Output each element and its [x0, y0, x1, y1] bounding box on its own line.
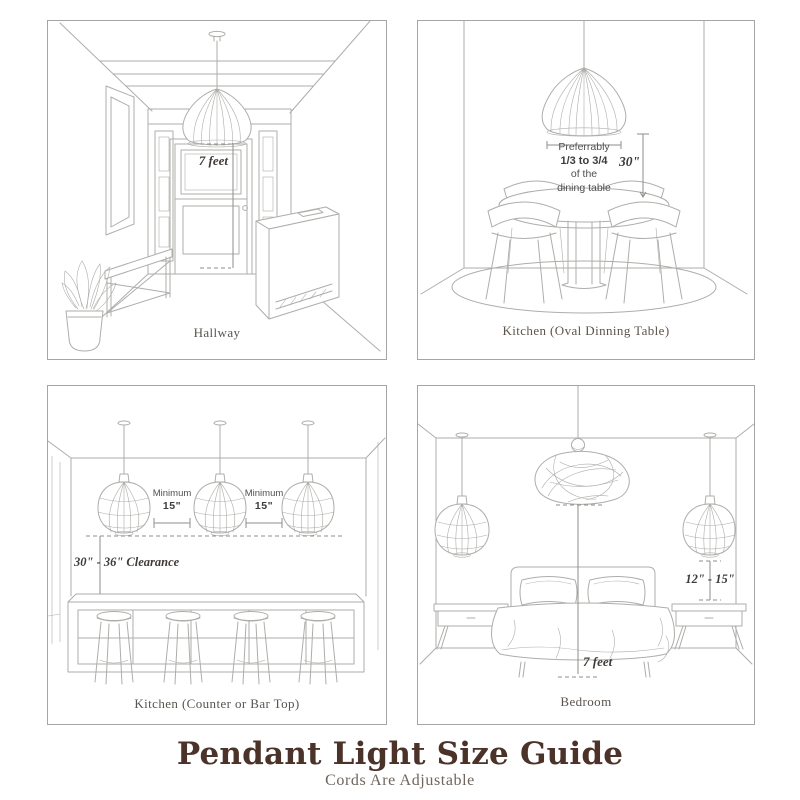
note-line-1: Preferrably: [521, 141, 647, 155]
hallway-caption: Hallway: [48, 325, 386, 341]
min-value: 15": [234, 500, 294, 512]
counter-clearance-label: 30" - 36" Clearance: [74, 556, 244, 570]
min-word: Minimum: [142, 488, 202, 500]
dining-table-caption: Kitchen (Oval Dinning Table): [418, 323, 754, 339]
panel-counter: Minimum 15" Minimum 15" 30" - 36" Cleara…: [47, 385, 387, 725]
panel-dining-table: Preferrably 1/3 to 3/4 of the dining tab…: [417, 20, 755, 360]
panel-bedroom: 12" - 15" 7 feet Bedroom: [417, 385, 755, 725]
min-value: 15": [142, 500, 202, 512]
counter-caption: Kitchen (Counter or Bar Top): [48, 696, 386, 712]
hallway-height-label: 7 feet: [176, 154, 228, 168]
poster-title: Pendant Light Size Guide: [0, 736, 800, 772]
bedroom-illustration: [418, 386, 754, 724]
panel-hallway: 7 feet Hallway: [47, 20, 387, 360]
bedroom-caption: Bedroom: [418, 694, 754, 710]
bedroom-side-drop-label: 12" - 15": [676, 573, 744, 587]
note-line-3: of the: [521, 168, 647, 182]
min-spacing-label-1: Minimum 15": [142, 488, 202, 512]
dining-drop-label: 30": [608, 155, 640, 170]
min-word: Minimum: [234, 488, 294, 500]
pendant-light-size-guide-poster: { "footer": { "title": "Pendant Light Si…: [0, 0, 800, 800]
min-spacing-label-2: Minimum 15": [234, 488, 294, 512]
poster-subtitle: Cords Are Adjustable: [0, 772, 800, 790]
hallway-illustration: [48, 21, 386, 359]
note-line-4: dining table: [521, 182, 647, 196]
bedroom-height-label: 7 feet: [583, 655, 643, 669]
